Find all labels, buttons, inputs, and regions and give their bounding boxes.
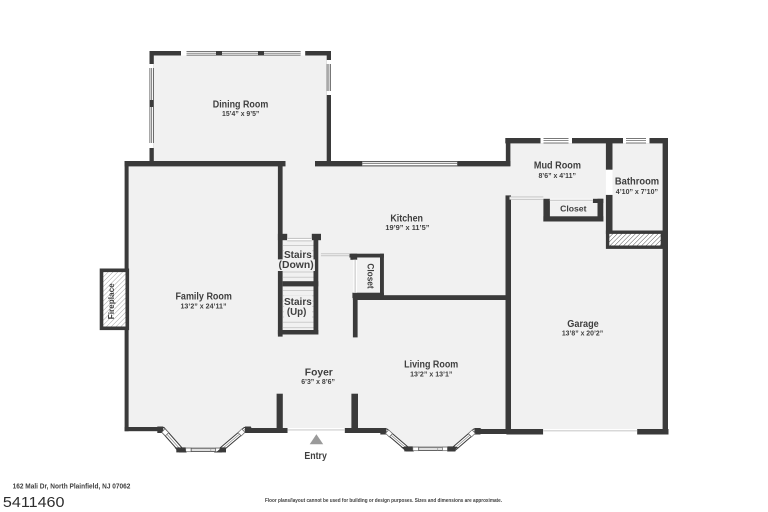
- svg-text:162 Mali Dr, North Plainfield,: 162 Mali Dr, North Plainfield, NJ 07062: [13, 484, 131, 491]
- svg-text:Closet: Closet: [366, 263, 376, 288]
- svg-text:Fireplace: Fireplace: [107, 283, 116, 320]
- svg-text:13’2” x 24’11”: 13’2” x 24’11”: [181, 301, 227, 310]
- svg-text:13’2” x 13’1”: 13’2” x 13’1”: [410, 369, 453, 378]
- svg-text:(Up): (Up): [287, 307, 307, 318]
- svg-text:8’6” x 4’11”: 8’6” x 4’11”: [538, 171, 576, 180]
- svg-text:6’3” x 8’6”: 6’3” x 8’6”: [301, 377, 335, 386]
- svg-text:Entry: Entry: [304, 451, 327, 462]
- svg-text:(Down): (Down): [279, 260, 314, 271]
- svg-text:Floor plans/layout cannot be u: Floor plans/layout cannot be used for bu…: [265, 498, 503, 504]
- svg-text:13’8” x 20’2”: 13’8” x 20’2”: [562, 329, 604, 338]
- svg-text:Closet: Closet: [560, 203, 587, 213]
- svg-text:19’9” x 11’5”: 19’9” x 11’5”: [385, 223, 429, 232]
- svg-text:Mud Room: Mud Room: [534, 160, 581, 171]
- svg-text:4’10” x 7’10”: 4’10” x 7’10”: [616, 187, 658, 196]
- svg-text:5411460: 5411460: [3, 494, 65, 511]
- svg-text:Stairs: Stairs: [284, 250, 312, 261]
- svg-text:15’4” x 9’5”: 15’4” x 9’5”: [222, 109, 260, 118]
